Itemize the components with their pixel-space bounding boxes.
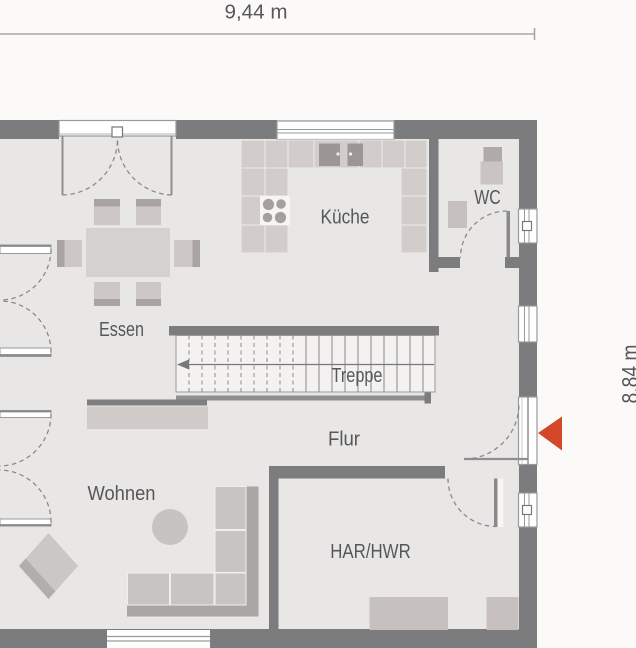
svg-text:HAR/HWR: HAR/HWR bbox=[330, 540, 411, 563]
svg-text:WC: WC bbox=[474, 186, 501, 209]
svg-text:Wohnen: Wohnen bbox=[88, 482, 156, 505]
svg-text:Essen: Essen bbox=[99, 318, 144, 341]
svg-text:9,44 m: 9,44 m bbox=[225, 2, 288, 24]
svg-text:Küche: Küche bbox=[321, 206, 370, 229]
svg-text:8,84 m: 8,84 m bbox=[617, 345, 636, 404]
svg-text:Flur: Flur bbox=[328, 428, 360, 451]
svg-text:Treppe: Treppe bbox=[332, 364, 383, 387]
